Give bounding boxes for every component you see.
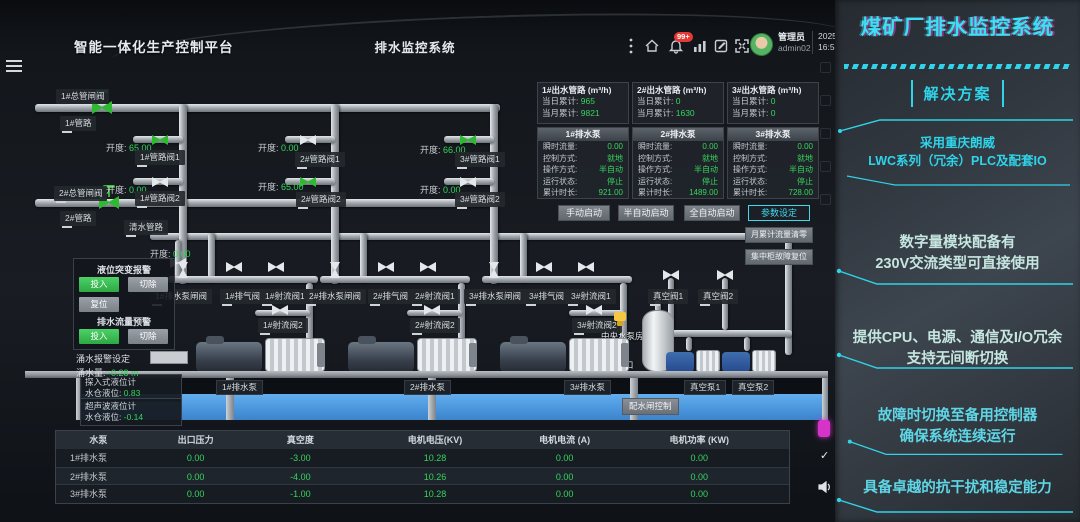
connector-line: [835, 352, 1080, 372]
opening-readout: 开度: 0.00: [258, 141, 299, 154]
vacuum-pump-2-assembly[interactable]: [722, 350, 776, 372]
level-alarm-reset-button[interactable]: 复位: [79, 297, 119, 312]
valve-label: 2#排水泵闸阀: [304, 289, 366, 304]
parameter-setting-button[interactable]: 参数设定: [748, 205, 810, 221]
fullscreen-icon[interactable]: [734, 38, 750, 54]
valve-label: 1#排气阀: [220, 289, 265, 304]
flow-alarm-cut-button[interactable]: 切除: [128, 329, 168, 344]
notification-badge: 99+: [674, 32, 693, 42]
signal-chart-icon[interactable]: [692, 38, 708, 54]
edge-tool-icon[interactable]: [820, 194, 831, 205]
table-header-row: 水泵 出口压力 真空度 电机电压(KV) 电机电流 (A) 电机功率 (KW): [56, 431, 789, 449]
col-header: 电机电流 (A): [520, 431, 610, 449]
valve-label: 真空阀1: [648, 289, 688, 304]
water-surface: [80, 394, 824, 420]
valve-label: 1#管路阀1: [135, 150, 185, 165]
pump-2-assembly[interactable]: [348, 338, 477, 372]
gauge-value: 水仓液位: -0.14: [85, 412, 177, 423]
flow-alarm-title: 排水流量预警: [73, 315, 175, 328]
valve-label: 2#射流阀1: [410, 289, 460, 304]
level-alarm-engage-button[interactable]: 投入: [79, 277, 119, 292]
pump-2-vent-valve[interactable]: [378, 262, 394, 272]
table-row: 3#排水泵 0.00 -1.00 10.28 0.00 0.00: [56, 485, 789, 503]
user-info: 管理员 admin02: [778, 32, 811, 53]
edge-tool-icon[interactable]: [820, 95, 831, 106]
table-row: 2#排水泵 0.00 -4.00 10.26 0.00 0.00: [56, 467, 789, 485]
user-avatar[interactable]: [750, 33, 773, 56]
pump-row: 瞬时流量:0.00: [728, 141, 818, 153]
pump-2-jet-valve-1[interactable]: [420, 262, 436, 272]
pump-row: 运行状态:停止: [538, 176, 628, 188]
col-header: 电机电压(KV): [350, 431, 520, 449]
promo-item-1: 采用重庆朗威LWC系列（冗余）PLC及配套IO: [843, 134, 1072, 170]
outlet-title: 1#出水管路 (m³/h): [542, 85, 624, 96]
col-header: 电机功率 (KW): [609, 431, 789, 449]
valve-label: 2#射流阀2: [410, 318, 460, 333]
basin-pump-label: 3#排水泵: [564, 380, 611, 395]
connector-line: [835, 268, 1080, 288]
pipe: [744, 337, 750, 351]
divider-line: [835, 116, 1080, 136]
divider-line: [835, 172, 1080, 192]
col-header: 水泵: [56, 431, 141, 449]
water-gate-control-button[interactable]: 配水闸控制: [622, 398, 679, 415]
pump-1-assembly[interactable]: [196, 338, 325, 372]
pump-row: 累计时长:728.00: [728, 187, 818, 199]
pipe: [150, 233, 792, 240]
pipe-label: 1#管路: [60, 116, 96, 131]
inflow-alarm-setting-input[interactable]: [150, 351, 188, 364]
level-alarm-title: 液位突变报警: [73, 263, 175, 276]
pump-tab[interactable]: 3#排水泵: [728, 128, 818, 141]
col-header: 出口压力: [141, 431, 251, 449]
flow-alarm-engage-button[interactable]: 投入: [79, 329, 119, 344]
user-role: 管理员: [778, 32, 811, 43]
home-icon[interactable]: [644, 38, 660, 54]
pipe-label: 清水管路: [124, 220, 168, 235]
pump-3-vent-valve[interactable]: [536, 262, 552, 272]
screen: 智能一体化生产控制平台 排水监控系统 99+ 管理员 admin02 2025-: [0, 0, 1080, 522]
pipe: [722, 278, 728, 330]
pump-row: 控制方式:就地: [728, 153, 818, 165]
pump-row: 控制方式:就地: [633, 153, 723, 165]
valve-label: 2#管路阀1: [295, 152, 345, 167]
promo-title: 煤矿厂排水监控系统: [841, 10, 1074, 40]
pump-row: 瞬时流量:0.00: [538, 141, 628, 153]
valve-label: 3#排水泵闸阀: [464, 289, 526, 304]
top-bar: 智能一体化生产控制平台 排水监控系统 99+ 管理员 admin02 2025-: [0, 30, 835, 62]
valve-label: 2#管路阀2: [296, 192, 346, 207]
outlet-panel-3: 3#出水管路 (m³/h) 当日累计: 0 当月累计: 0: [727, 82, 819, 124]
col-header: 真空度: [250, 431, 350, 449]
pipe-label: 2#管路: [60, 211, 96, 226]
pump-row: 操作方式:半自动: [633, 164, 723, 176]
pump-1-vent-valve[interactable]: [226, 262, 242, 272]
inflow-alarm-setting-label: 涌水报警设定: [76, 352, 130, 365]
pump-row: 运行状态:停止: [633, 176, 723, 188]
pump-status-panel-2: 2#排水泵 瞬时流量:0.00 控制方式:就地 操作方式:半自动 运行状态:停止…: [632, 127, 724, 199]
valve-label: 1#总管闸阀: [56, 89, 109, 104]
pump-data-table: 水泵 出口压力 真空度 电机电压(KV) 电机电流 (A) 电机功率 (KW) …: [55, 430, 790, 504]
pump-tab[interactable]: 1#排水泵: [538, 128, 628, 141]
magenta-notification-marker[interactable]: [818, 420, 830, 437]
solution-tag: 解决方案: [835, 80, 1080, 107]
camera-icon[interactable]: [612, 312, 628, 327]
valve-label: 3#射流阀1: [566, 289, 616, 304]
edge-tool-icon[interactable]: [820, 62, 831, 73]
speaker-icon[interactable]: [818, 480, 832, 492]
connector-line: [835, 438, 1080, 458]
outlet-title: 2#出水管路 (m³/h): [637, 85, 719, 96]
full-auto-start-button[interactable]: 全自动启动: [684, 205, 740, 221]
outlet-panel-1: 1#出水管路 (m³/h) 当日累计: 965 当月累计: 9821: [537, 82, 629, 124]
pipe: [168, 276, 318, 283]
pipe: [668, 330, 792, 337]
basin-pump-label: 真空泵2: [732, 380, 774, 395]
pump-row: 操作方式:半自动: [538, 164, 628, 176]
edge-tool-icon[interactable]: [820, 161, 831, 172]
level-alarm-cut-button[interactable]: 切除: [128, 277, 168, 292]
valve-label: 3#管路阀1: [455, 152, 505, 167]
pump-row: 累计时长:1489.00: [633, 187, 723, 199]
pump-row: 瞬时流量:0.00: [633, 141, 723, 153]
kebab-menu-icon[interactable]: [628, 38, 634, 54]
basin-pump-label: 2#排水泵: [404, 380, 451, 395]
pump-3-assembly[interactable]: [500, 338, 629, 372]
semi-auto-start-button[interactable]: 半自动启动: [618, 205, 674, 221]
outlet-day-row: 当日累计: 0: [732, 96, 814, 107]
basin-pump-label: 1#排水泵: [216, 380, 263, 395]
level-gauge-ultrasonic: 超声波液位计 水仓液位: -0.14: [80, 398, 182, 426]
pipe: [320, 276, 470, 283]
gauge-name: 超声波液位计: [85, 401, 177, 412]
table-row: 1#排水泵 0.00 -3.00 10.28 0.00 0.00: [56, 449, 789, 467]
basin-wall-right: [822, 378, 828, 420]
valve-label: 1#射流阀2: [258, 318, 308, 333]
pump-1-jet-valve-1[interactable]: [268, 262, 284, 272]
valve-label: 2#排气阀: [368, 289, 413, 304]
outlet-title: 3#出水管路 (m³/h): [732, 85, 814, 96]
hamburger-menu-icon[interactable]: [6, 60, 22, 72]
system-title: 排水监控系统: [330, 37, 500, 56]
user-id: admin02: [778, 43, 811, 53]
monthly-flow-reset-button[interactable]: 月累计流量清零: [745, 227, 813, 243]
inflow-readout: 涌水量: -0.28 m: [76, 366, 139, 379]
outlet-month-row: 当月累计: 9821: [542, 108, 624, 119]
edge-tool-icon[interactable]: [820, 128, 831, 139]
promo-item-5: 具备卓越的抗干扰和稳定能力: [843, 478, 1072, 499]
valve-label: 真空阀2: [698, 289, 738, 304]
pump-row: 累计时长:921.00: [538, 187, 628, 199]
outlet-panel-2: 2#出水管路 (m³/h) 当日累计: 0 当月累计: 1630: [632, 82, 724, 124]
pump-tab[interactable]: 2#排水泵: [633, 128, 723, 141]
pump-row: 操作方式:半自动: [728, 164, 818, 176]
outlet-day-row: 当日累计: 0: [637, 96, 719, 107]
valve-label: 3#排气阀: [524, 289, 569, 304]
platform-title: 智能一体化生产控制平台: [74, 36, 234, 56]
pump-status-panel-3: 3#排水泵 瞬时流量:0.00 控制方式:就地 操作方式:半自动 运行状态:停止…: [727, 127, 819, 199]
cabinet-fault-reset-button[interactable]: 集中柜故障复位: [745, 249, 813, 265]
scada-panel: 智能一体化生产控制平台 排水监控系统 99+ 管理员 admin02 2025-: [0, 0, 835, 522]
valve-label: 2#总管闸阀: [54, 186, 107, 201]
outlet-month-row: 当月累计: 0: [732, 108, 814, 119]
pipe: [686, 337, 692, 351]
vacuum-pump-1-assembly[interactable]: [666, 350, 720, 372]
valve-label: 3#管路阀2: [455, 192, 505, 207]
manual-start-button[interactable]: 手动启动: [558, 205, 610, 221]
pump-3-jet-valve-1[interactable]: [578, 262, 594, 272]
pump-row: 控制方式:就地: [538, 153, 628, 165]
outlet-day-row: 当日累计: 965: [542, 96, 624, 107]
check-icon[interactable]: ✓: [820, 449, 829, 462]
valve-label: 1#射流阀1: [260, 289, 310, 304]
basin-pump-label: 真空泵1: [684, 380, 726, 395]
promo-panel: 煤矿厂排水监控系统 解决方案 采用重庆朗威LWC系列（冗余）PLC及配套IO 数…: [835, 0, 1080, 522]
pump-row: 运行状态:停止: [728, 176, 818, 188]
valve-label: 1#管路阀2: [135, 191, 185, 206]
pipe: [482, 276, 632, 283]
outlet-month-row: 当月累计: 1630: [637, 108, 719, 119]
dashed-divider: [844, 64, 1070, 69]
connector-line: [835, 498, 1080, 518]
note-edit-icon[interactable]: [713, 38, 729, 54]
pump-status-panel-1: 1#排水泵 瞬时流量:0.00 控制方式:就地 操作方式:半自动 运行状态:停止…: [537, 127, 629, 199]
